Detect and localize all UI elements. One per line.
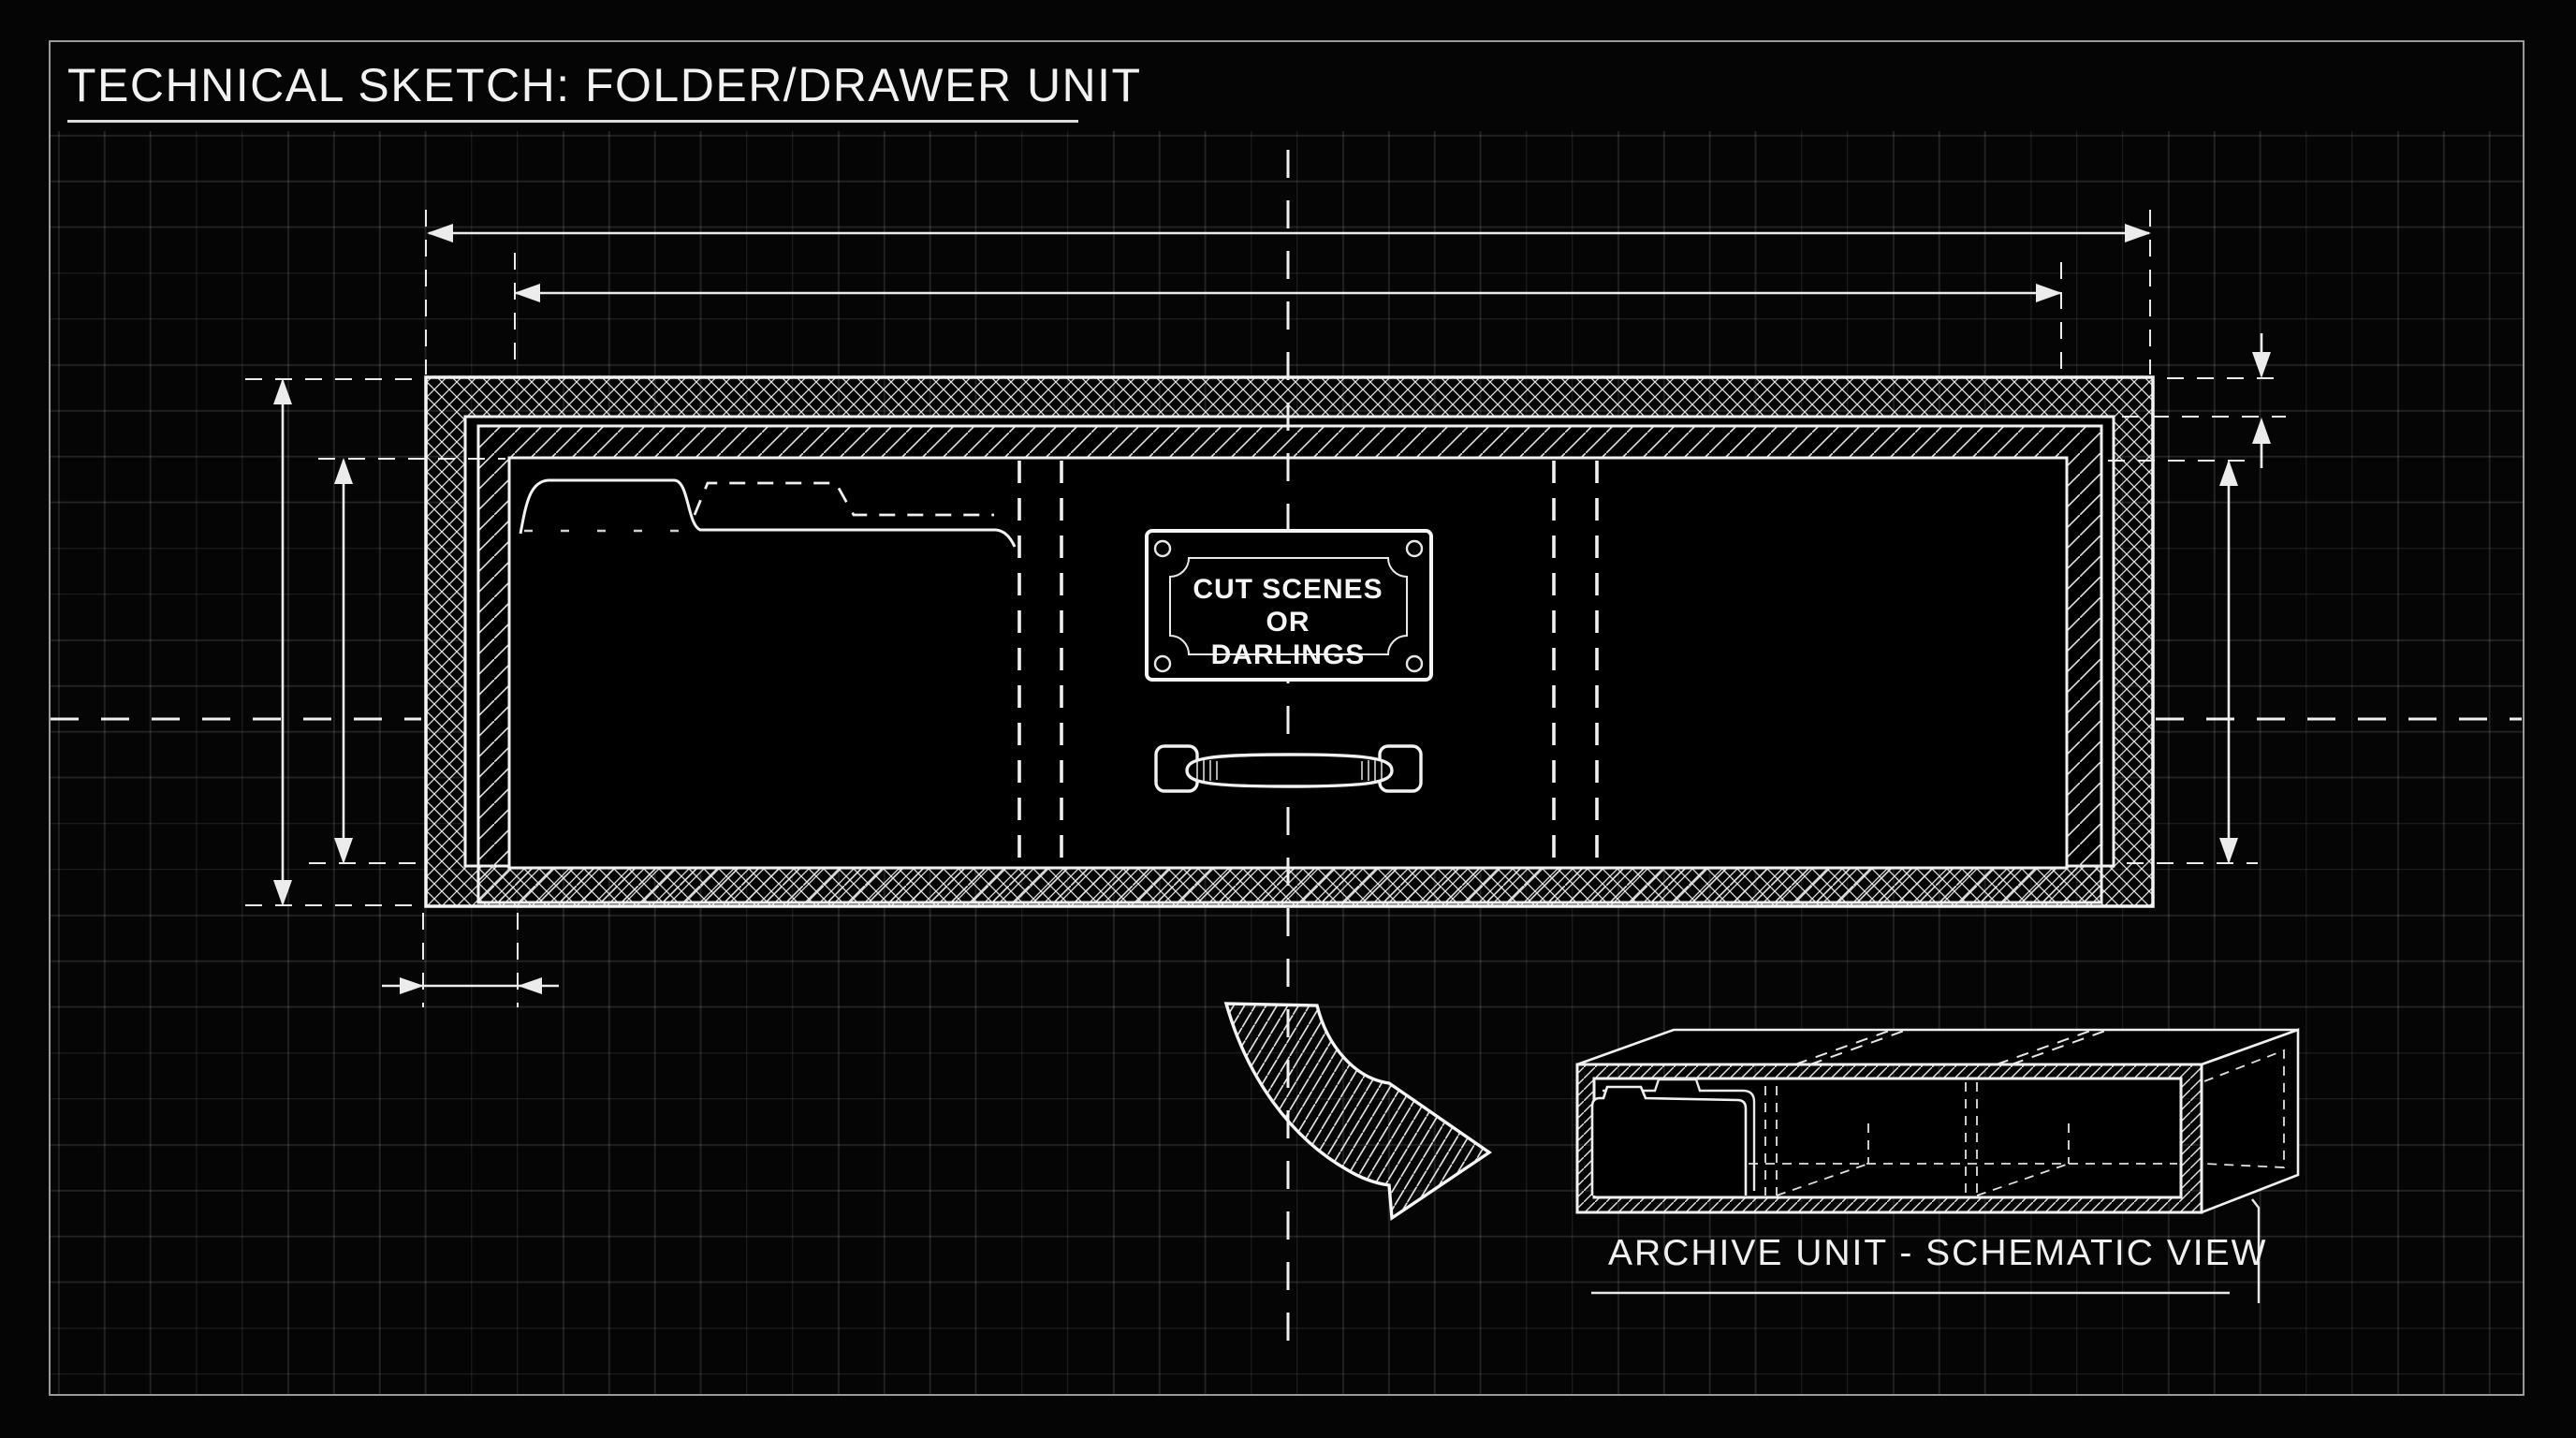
blueprint-sheet: TECHNICAL SKETCH: FOLDER/DRAWER UNIT	[0, 0, 2576, 1438]
iso-folder-front	[1592, 1087, 1746, 1196]
plate-label-line1: CUT SCENES	[1193, 574, 1383, 605]
technical-drawing: CUT SCENES OR DARLINGS	[0, 0, 2576, 1438]
curved-arrow-icon	[1226, 1004, 1489, 1218]
iso-caption: ARCHIVE UNIT - SCHEMATIC VIEW	[1608, 1233, 2267, 1273]
plate-label-line3: DARLINGS	[1211, 639, 1366, 670]
iso-view: ARCHIVE UNIT - SCHEMATIC VIEW	[1577, 1030, 2298, 1303]
name-plate: CUT SCENES OR DARLINGS	[1147, 531, 1431, 680]
plate-label-line2: OR	[1266, 607, 1310, 638]
handle-bar	[1187, 755, 1392, 786]
dim-bottom-wall	[382, 913, 559, 1007]
iso-top-face	[1577, 1030, 2298, 1064]
dim-outer-height	[245, 378, 421, 906]
